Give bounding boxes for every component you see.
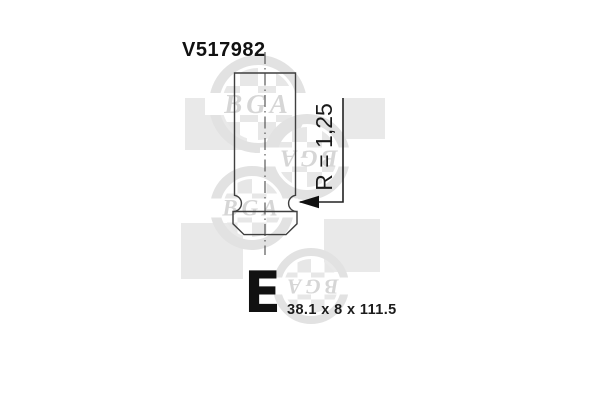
valve-drawing <box>0 0 600 400</box>
part-number: V517982 <box>182 39 266 62</box>
technical-drawing-page: BGA BGA BGA BGA V517982 R = 1,25 E 38.1 … <box>0 0 600 400</box>
valve-class-letter: E <box>244 265 281 322</box>
radius-arrow-icon <box>299 196 320 209</box>
radius-annotation: R = 1,25 <box>311 101 335 193</box>
dimensions-label: 38.1 x 8 x 111.5 <box>287 302 397 318</box>
